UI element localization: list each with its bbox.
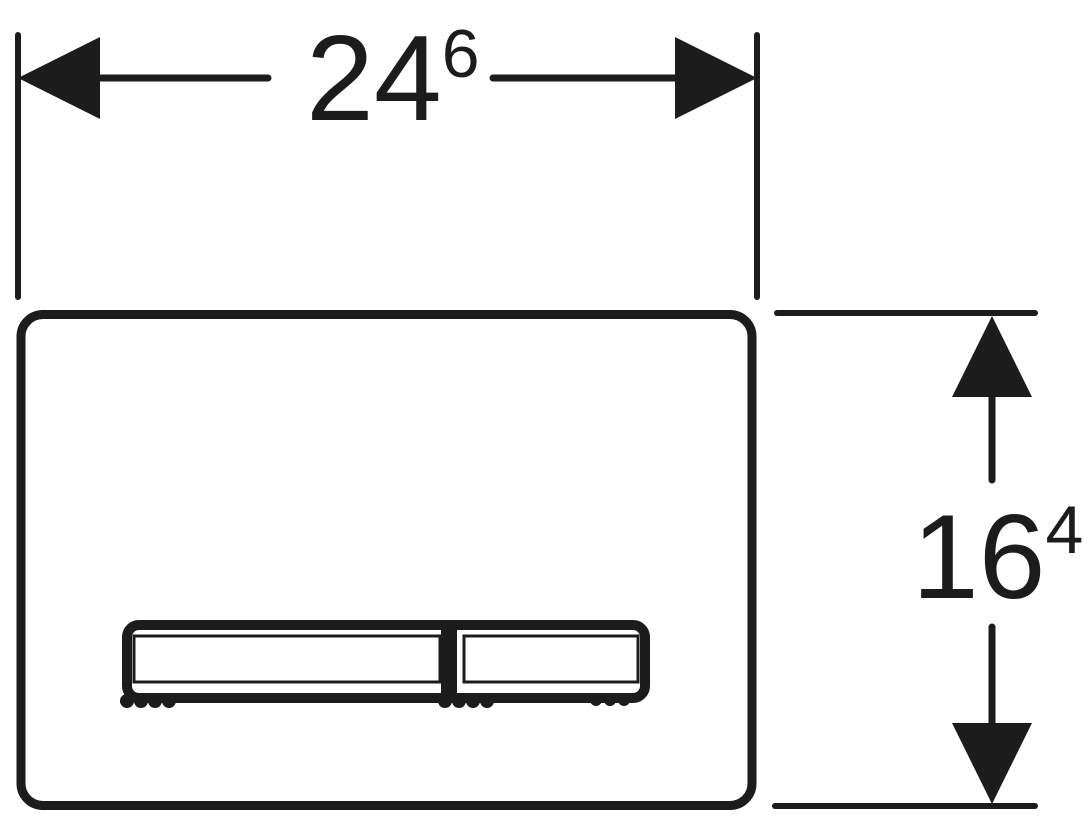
- width-dimension-value: 24: [306, 10, 442, 146]
- width-dimension: 246: [18, 10, 757, 297]
- height-dimension-label: 164: [912, 490, 1083, 624]
- width-dimension-superscript: 6: [442, 16, 480, 92]
- arrow-up-icon: [952, 316, 1032, 397]
- technical-drawing-canvas: 246 164: [0, 0, 1089, 826]
- arrow-left-icon: [18, 37, 100, 119]
- height-dimension: 164: [775, 313, 1083, 806]
- arrow-right-icon: [675, 37, 757, 119]
- width-dimension-label: 246: [306, 10, 480, 146]
- flush-plate-outline: [21, 315, 752, 806]
- button-divider: [441, 620, 457, 703]
- arrow-down-icon: [952, 723, 1032, 804]
- flush-button-unit: [120, 620, 645, 708]
- height-dimension-value: 16: [912, 490, 1045, 624]
- flush-plate-dimension-drawing: 246 164: [0, 0, 1089, 826]
- height-dimension-superscript: 4: [1045, 492, 1083, 568]
- flush-plate: [21, 315, 752, 806]
